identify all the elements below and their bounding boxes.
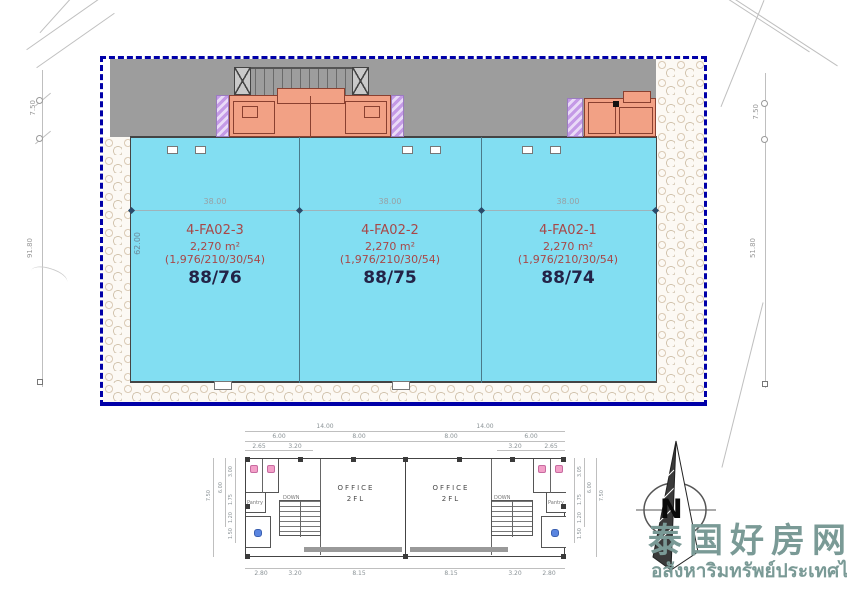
dim-label: 1.50 xyxy=(228,528,234,539)
dim-label: 8.15 xyxy=(436,570,466,577)
pantry-room: Pantry xyxy=(246,493,266,513)
wc-room xyxy=(541,516,566,548)
office-stair xyxy=(242,106,258,118)
braced-frame xyxy=(352,67,369,95)
column-marker xyxy=(457,457,462,462)
column-marker xyxy=(561,504,566,509)
dim-line xyxy=(765,73,766,388)
stone-strip-left xyxy=(103,137,131,402)
wc-room xyxy=(246,516,271,548)
dim-label: 1.20 xyxy=(228,512,234,523)
unit-area: 2,270 m² xyxy=(493,240,643,253)
office-block-center xyxy=(229,95,391,137)
office-label-line2: 2FL xyxy=(401,494,501,505)
column-hatch xyxy=(391,95,404,137)
office-label-line2: 2FL xyxy=(306,494,406,505)
toilet-room xyxy=(533,459,566,493)
dim-label: 8.15 xyxy=(344,570,374,577)
staircase xyxy=(279,500,321,536)
unit-breakdown: (1,976/210/30/54) xyxy=(315,253,465,266)
second-floor-plan: Pantry DOWN OFFICE 2FL Pantry DOWN xyxy=(245,458,565,557)
wc-fixture xyxy=(551,529,559,537)
dim-line xyxy=(584,458,585,527)
dim-label-left-offset: 7.50 xyxy=(29,100,37,116)
office-label-line1: OFFICE xyxy=(401,483,501,494)
dim-leader xyxy=(721,302,763,467)
rear-door xyxy=(392,381,410,390)
balcony-strip xyxy=(410,547,508,552)
dim-line-width xyxy=(131,210,656,211)
office-label-line1: OFFICE xyxy=(306,483,406,494)
stair-divider xyxy=(512,501,513,537)
dock-door xyxy=(430,146,441,154)
braced-frame xyxy=(234,67,251,95)
office-detail xyxy=(613,101,619,107)
dim-label: 1.20 xyxy=(577,512,583,523)
dim-label: 6.00 xyxy=(218,482,224,493)
unit-house-no: 88/76 xyxy=(140,268,290,288)
dim-label: 8.00 xyxy=(329,433,389,440)
dim-label: 1.75 xyxy=(228,494,234,505)
dim-node xyxy=(761,136,768,143)
column-hatch xyxy=(567,98,583,137)
column-hatch xyxy=(216,95,229,137)
dim-node xyxy=(37,379,43,385)
unit-id: 4-FA02-2 xyxy=(315,223,465,238)
column-marker xyxy=(561,554,566,559)
column-marker xyxy=(245,457,250,462)
office-room xyxy=(623,91,651,103)
wc-fixture xyxy=(254,529,262,537)
dim-label: 1.75 xyxy=(577,494,583,505)
office-stair xyxy=(364,106,380,118)
column-marker xyxy=(245,554,250,559)
office-label-left: OFFICE 2FL xyxy=(306,483,406,504)
dim-label: 14.00 xyxy=(285,423,365,430)
dim-label: 3.20 xyxy=(280,443,310,450)
dim-line xyxy=(245,568,565,569)
survey-mark xyxy=(700,0,810,52)
dock-door xyxy=(195,146,206,154)
toilet-fixture xyxy=(538,465,546,473)
staircase xyxy=(491,500,533,536)
logo-title-chinese: 泰国好房网 xyxy=(648,513,847,562)
dim-arc xyxy=(28,263,69,291)
dim-label: 6.00 xyxy=(501,433,561,440)
dim-node xyxy=(36,97,43,104)
column-marker xyxy=(403,457,408,462)
dock-door xyxy=(402,146,413,154)
logo-subtitle-thai: อสังหาริมทรัพย์ประเทศไทย xyxy=(651,556,847,586)
unit-label-4-FA02-3: 4-FA02-3 2,270 m² (1,976/210/30/54) 88/7… xyxy=(140,223,290,288)
wall-line-left xyxy=(130,137,131,383)
dim-line xyxy=(245,431,565,432)
dock-door xyxy=(550,146,561,154)
wall-line-right xyxy=(656,137,657,383)
dim-label: 3.20 xyxy=(280,570,310,577)
dim-label: 6.00 xyxy=(587,482,593,493)
dim-label: 2.65 xyxy=(536,443,566,450)
dim-label-right-offset: 7.50 xyxy=(752,104,760,120)
dim-label: 14.00 xyxy=(445,423,525,430)
office-room xyxy=(619,107,653,134)
dim-label: 2.65 xyxy=(244,443,274,450)
unit-partition xyxy=(299,137,300,383)
stair-divider xyxy=(300,501,301,537)
dim-label: 3.20 xyxy=(500,570,530,577)
unit-breakdown: (1,976/210/30/54) xyxy=(140,253,290,266)
dim-node xyxy=(761,100,768,107)
dim-node xyxy=(762,381,768,387)
toilet-fixture xyxy=(555,465,563,473)
office-divider xyxy=(310,96,311,138)
toilet-partition xyxy=(262,459,263,493)
dim-label-unit1-width: 38.00 xyxy=(533,197,603,206)
dim-line xyxy=(497,450,565,451)
stone-strip-bottom xyxy=(103,383,656,402)
rear-door xyxy=(214,381,232,390)
dim-leader xyxy=(720,0,764,107)
dim-label-unit2-width: 38.00 xyxy=(355,197,425,206)
office-room xyxy=(588,102,616,134)
unit-partition xyxy=(481,137,482,383)
dim-line xyxy=(42,70,43,387)
dim-line xyxy=(225,458,226,527)
unit-label-4-FA02-2: 4-FA02-2 2,270 m² (1,976/210/30/54) 88/7… xyxy=(315,223,465,288)
dim-line xyxy=(245,450,313,451)
toilet-fixture xyxy=(250,465,258,473)
toilet-room xyxy=(246,459,279,493)
dim-line xyxy=(245,441,565,442)
pantry-room: Pantry xyxy=(546,493,566,513)
floor-plan-canvas: 7.50 91.80 7.50 51.80 38.00 38.00 38.00 … xyxy=(0,0,847,590)
dim-label: 3.20 xyxy=(500,443,530,450)
dim-label: 2.80 xyxy=(534,570,564,577)
unit-house-no: 88/74 xyxy=(493,268,643,288)
column-marker xyxy=(510,457,515,462)
dim-line xyxy=(213,458,214,557)
unit-breakdown: (1,976/210/30/54) xyxy=(493,253,643,266)
column-marker xyxy=(403,554,408,559)
dim-label: 8.00 xyxy=(421,433,481,440)
dock-door xyxy=(167,146,178,154)
dim-label-unit3-width: 38.00 xyxy=(180,197,250,206)
office-label-right: OFFICE 2FL xyxy=(401,483,501,504)
survey-mark xyxy=(26,0,104,50)
column-marker xyxy=(561,457,566,462)
unit-id: 4-FA02-1 xyxy=(493,223,643,238)
balcony-strip xyxy=(304,547,402,552)
toilet-partition xyxy=(550,459,551,493)
office-room xyxy=(277,88,345,104)
office-block-right xyxy=(584,98,656,137)
unit-area: 2,270 m² xyxy=(315,240,465,253)
unit-house-no: 88/75 xyxy=(315,268,465,288)
dim-label: 2.80 xyxy=(246,570,276,577)
unit-id: 4-FA02-3 xyxy=(140,223,290,238)
column-marker xyxy=(298,457,303,462)
party-wall xyxy=(405,459,406,558)
dim-label-left-depth: 91.80 xyxy=(26,238,34,258)
dim-label-right-depth: 51.80 xyxy=(749,238,757,258)
column-marker xyxy=(245,504,250,509)
unit-label-4-FA02-1: 4-FA02-1 2,270 m² (1,976/210/30/54) 88/7… xyxy=(493,223,643,288)
dim-label: 3.00 xyxy=(228,466,234,477)
dim-label: 7.50 xyxy=(206,490,212,501)
dim-label: 6.00 xyxy=(249,433,309,440)
dim-node xyxy=(36,135,43,142)
toilet-fixture xyxy=(267,465,275,473)
column-marker xyxy=(351,457,356,462)
stone-strip-right xyxy=(656,59,704,402)
dim-label: 1.50 xyxy=(577,528,583,539)
dim-line xyxy=(574,458,575,543)
dim-line xyxy=(235,458,236,543)
dim-label: 3.05 xyxy=(577,466,583,477)
dock-door xyxy=(522,146,533,154)
dim-line xyxy=(596,458,597,557)
unit-area: 2,270 m² xyxy=(140,240,290,253)
dim-label: 7.50 xyxy=(599,490,605,501)
